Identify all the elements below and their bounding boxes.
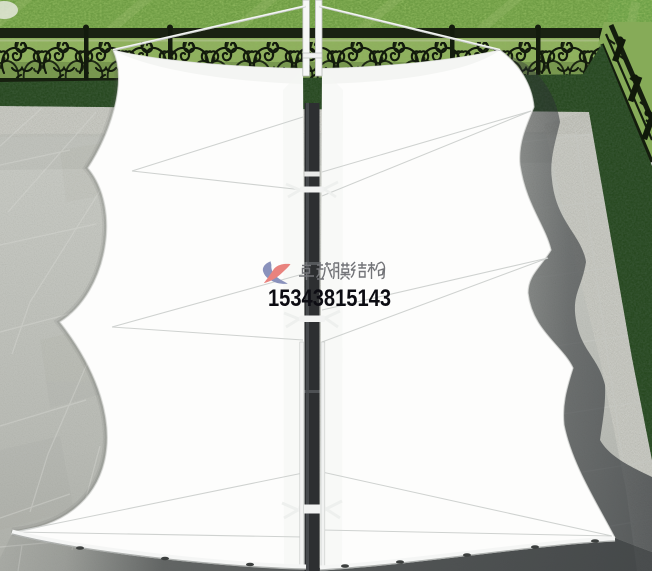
svg-text:15343815143: 15343815143: [268, 285, 391, 312]
